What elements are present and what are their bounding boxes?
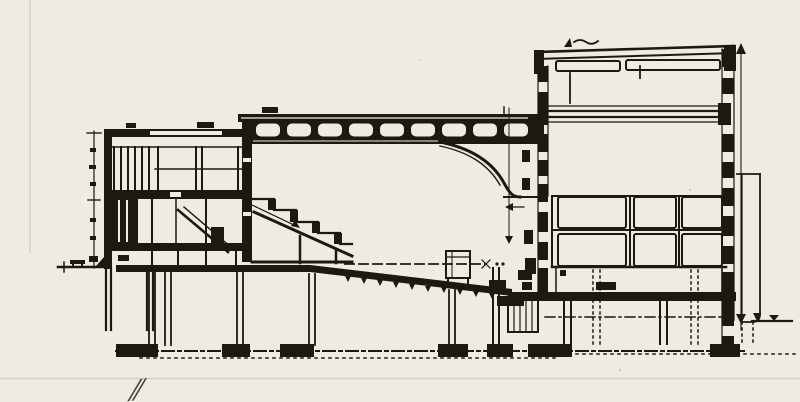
floor-slab-gap <box>170 192 181 197</box>
roof-coffers <box>256 124 528 137</box>
roof-level-marker <box>197 122 214 128</box>
dim-tick <box>90 182 96 186</box>
door-cut <box>211 227 224 243</box>
apron-blob <box>518 270 532 280</box>
dim-tick <box>89 165 96 169</box>
roof-level-marker <box>262 107 278 113</box>
section-drawing: ⁄⁄ <box>0 0 800 402</box>
level-marker-leg <box>72 264 74 268</box>
step-riser <box>268 199 276 210</box>
roof-level-marker <box>126 123 136 128</box>
pit-blob <box>489 280 506 290</box>
floor-slab-lower <box>104 243 244 251</box>
scan-speckle <box>689 189 691 191</box>
dim-tick <box>90 236 96 240</box>
dim-tick <box>90 148 96 152</box>
wall-gap <box>243 212 251 216</box>
tower-right-wall <box>722 46 734 356</box>
dim-tick <box>90 218 96 222</box>
scanned-drawing-page: ⁄⁄ <box>0 0 800 402</box>
apron-blob <box>522 282 532 290</box>
hatched-wall <box>112 199 138 243</box>
datum-dot <box>495 262 498 265</box>
roof-slab-core <box>150 131 222 135</box>
step-riser <box>312 222 320 233</box>
wall-nib <box>522 178 530 190</box>
scan-speckle <box>619 369 622 372</box>
flat-floor-slab <box>116 265 310 272</box>
wall-nib <box>524 230 533 244</box>
scan-speckle <box>419 59 421 61</box>
step-riser <box>290 210 298 222</box>
dim-tick <box>89 256 98 262</box>
wall-blob <box>596 282 616 290</box>
level-marker <box>70 260 85 264</box>
wall-gap <box>243 158 251 162</box>
ground-storey-blob <box>118 255 129 261</box>
wall-blob <box>560 270 566 276</box>
level-marker-leg <box>81 264 83 268</box>
wall-nib <box>522 150 530 162</box>
step-riser <box>334 233 342 244</box>
datum-dot <box>501 262 504 265</box>
